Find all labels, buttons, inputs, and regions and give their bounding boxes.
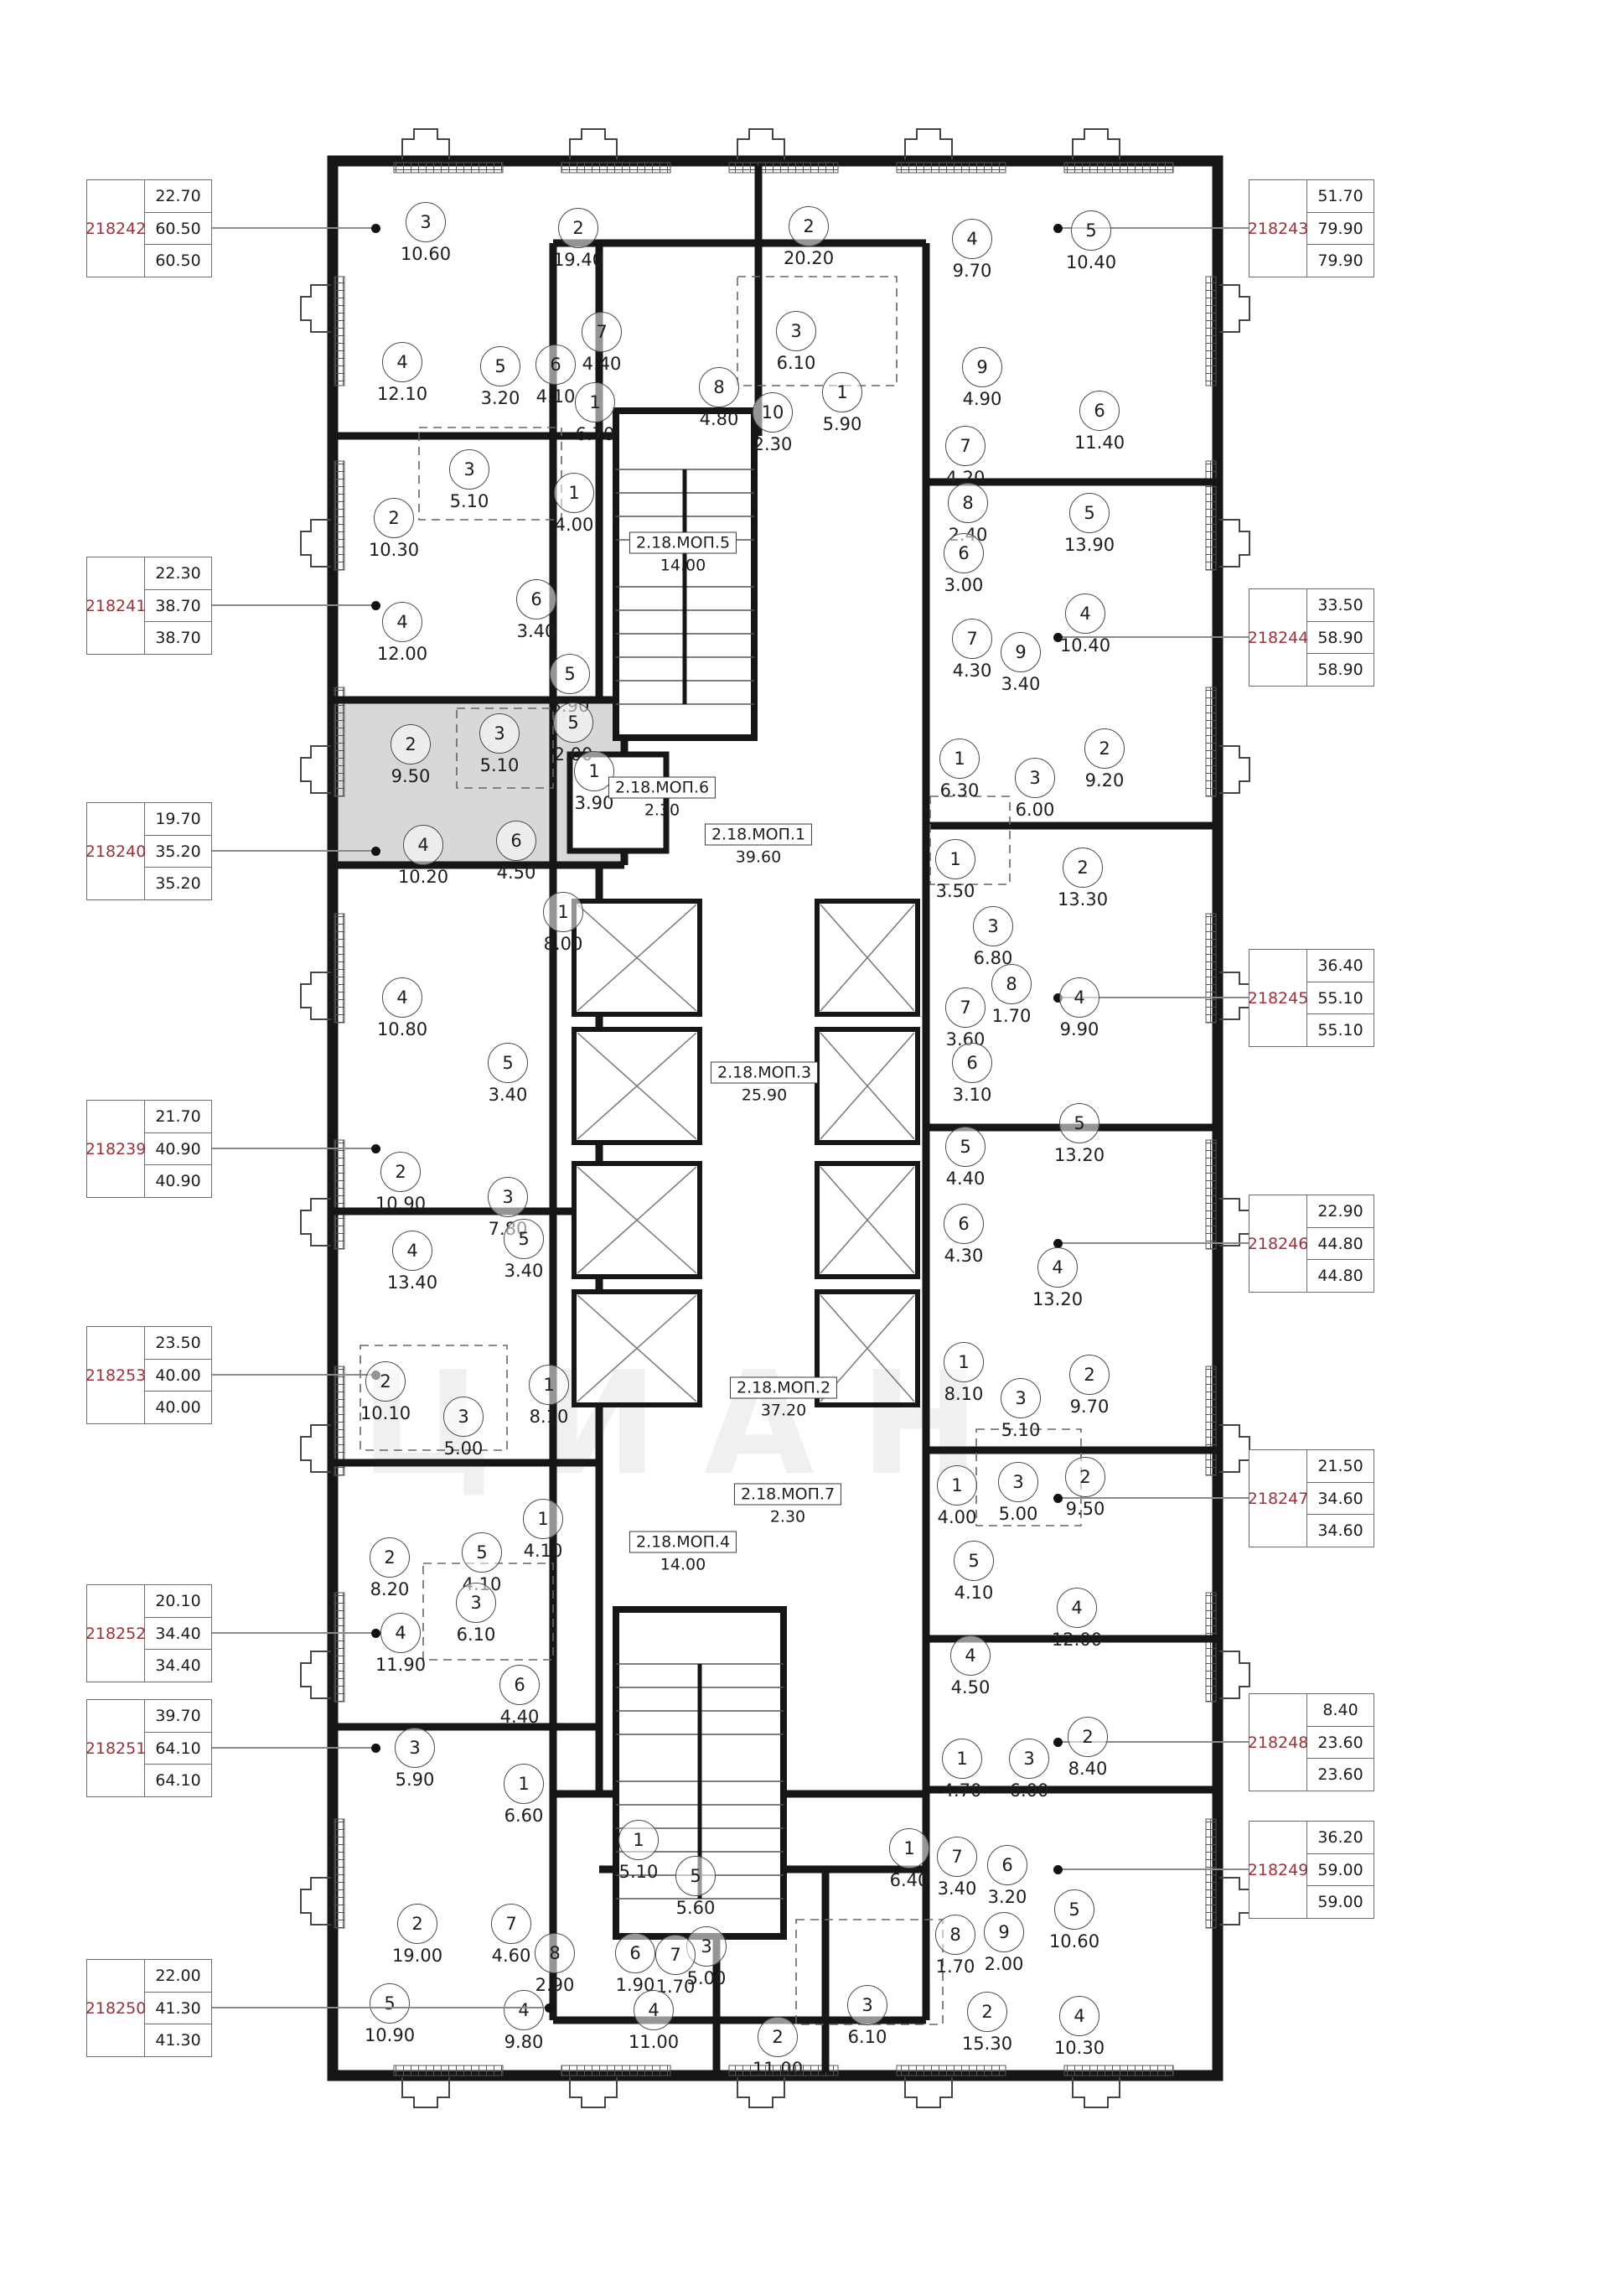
room-number: 5 bbox=[504, 1219, 544, 1259]
room-label: 36.10 bbox=[746, 311, 846, 373]
room-label: 211.00 bbox=[727, 2017, 828, 2079]
room-number: 6 bbox=[1079, 391, 1120, 431]
room-area: 6.00 bbox=[979, 1780, 1079, 1801]
room-number: 2 bbox=[391, 724, 431, 764]
room-area: 3.00 bbox=[913, 575, 1014, 595]
room-label: 310.60 bbox=[375, 202, 476, 264]
apartment-area-value: 40.00 bbox=[145, 1360, 211, 1392]
room-label: 215.30 bbox=[937, 1992, 1037, 2054]
room-area: 9.80 bbox=[473, 2032, 574, 2052]
room-area: 15.30 bbox=[937, 2034, 1037, 2054]
common-area-name: 2.18.МОП.4 bbox=[629, 1532, 737, 1553]
apartment-area-value: 40.90 bbox=[145, 1133, 211, 1166]
apartment-areas: 22.7060.5060.50 bbox=[145, 180, 211, 277]
room-area: 9.90 bbox=[1029, 1019, 1130, 1039]
apartment-id: 218240 bbox=[87, 803, 145, 899]
room-area: 9.70 bbox=[1039, 1397, 1140, 1417]
apartment-id-box: 21825022.0041.3041.30 bbox=[86, 1959, 212, 2057]
apartment-area-value: 22.30 bbox=[145, 557, 211, 590]
room-number: 1 bbox=[822, 372, 862, 412]
room-area: 12.10 bbox=[352, 384, 453, 404]
room-area: 3.10 bbox=[922, 1085, 1022, 1105]
room-area: 10.30 bbox=[344, 540, 444, 560]
room-number: 3 bbox=[1001, 1378, 1041, 1418]
apartment-id-box: 21824222.7060.5060.50 bbox=[86, 179, 212, 277]
room-label: 49.90 bbox=[1029, 977, 1130, 1039]
room-area: 13.20 bbox=[1029, 1145, 1130, 1165]
room-label: 53.40 bbox=[458, 1043, 558, 1105]
room-area: 4.50 bbox=[466, 863, 567, 883]
apartment-id-box: 2182488.4023.6023.60 bbox=[1249, 1693, 1374, 1791]
apartment-id-box: 21825139.7064.1064.10 bbox=[86, 1699, 212, 1797]
room-label: 219.40 bbox=[528, 208, 629, 270]
room-number: 3 bbox=[998, 1462, 1038, 1502]
apartment-id: 218247 bbox=[1249, 1450, 1307, 1547]
room-number: 2 bbox=[1063, 847, 1103, 888]
room-label: 412.00 bbox=[352, 602, 453, 664]
room-area: 10.20 bbox=[373, 867, 473, 887]
room-label: 53.40 bbox=[473, 1219, 574, 1281]
room-area: 10.40 bbox=[1041, 252, 1141, 272]
common-area-area: 14.00 bbox=[629, 557, 737, 575]
apartment-id: 218250 bbox=[87, 1960, 145, 2056]
room-label: 213.30 bbox=[1032, 847, 1133, 910]
room-area: 8.20 bbox=[339, 1579, 440, 1599]
floorplan-canvas: ЦИАН 21824222.7060.5060.50310.60219.4074… bbox=[0, 0, 1609, 2296]
room-label: 94.90 bbox=[932, 347, 1032, 409]
room-number: 4 bbox=[950, 1635, 991, 1676]
apartment-area-value: 40.90 bbox=[145, 1165, 211, 1197]
room-number: 8 bbox=[535, 1933, 575, 1973]
room-number: 4 bbox=[382, 342, 422, 382]
room-number: 1 bbox=[942, 1739, 982, 1779]
leader-line bbox=[212, 1747, 375, 1749]
apartment-id: 218241 bbox=[87, 557, 145, 654]
apartment-area-value: 64.10 bbox=[145, 1765, 211, 1796]
apartment-id: 218244 bbox=[1249, 589, 1307, 686]
room-area: 5.10 bbox=[970, 1420, 1071, 1440]
room-area: 4.40 bbox=[469, 1707, 570, 1727]
room-number: 3 bbox=[449, 449, 489, 490]
common-area-area: 2.30 bbox=[608, 801, 716, 820]
room-label: 18.00 bbox=[513, 892, 613, 954]
apartment-area-value: 22.90 bbox=[1307, 1195, 1374, 1228]
room-area: 3.40 bbox=[458, 1085, 558, 1105]
room-area: 10.60 bbox=[375, 244, 476, 264]
room-number: 1 bbox=[944, 1342, 984, 1382]
apartment-areas: 22.9044.8044.80 bbox=[1307, 1195, 1374, 1292]
room-label: 210.30 bbox=[344, 498, 444, 560]
apartment-id: 218252 bbox=[87, 1585, 145, 1682]
room-label: 36.80 bbox=[943, 906, 1043, 968]
room-number: 4 bbox=[403, 825, 443, 865]
apartment-area-value: 60.50 bbox=[145, 213, 211, 246]
room-area: 4.00 bbox=[524, 515, 624, 535]
room-label: 49.70 bbox=[922, 219, 1022, 281]
room-area: 19.40 bbox=[528, 250, 629, 270]
leader-line bbox=[212, 2007, 549, 2008]
room-area: 5.60 bbox=[645, 1898, 746, 1918]
room-label: 210.90 bbox=[350, 1152, 451, 1214]
room-area: 10.40 bbox=[1035, 635, 1136, 656]
apartment-area-value: 40.00 bbox=[145, 1392, 211, 1423]
room-label: 412.00 bbox=[1027, 1588, 1127, 1650]
room-label: 92.00 bbox=[954, 1912, 1054, 1974]
room-number: 5 bbox=[1071, 210, 1111, 251]
room-label: 28.20 bbox=[339, 1537, 440, 1599]
room-label: 71.70 bbox=[625, 1935, 726, 1997]
apartment-area-value: 20.10 bbox=[145, 1585, 211, 1618]
room-label: 63.10 bbox=[922, 1043, 1022, 1105]
room-area: 6.60 bbox=[473, 1806, 574, 1826]
room-label: 13.50 bbox=[905, 839, 1006, 901]
apartment-area-value: 41.30 bbox=[145, 1993, 211, 2025]
room-label: 513.20 bbox=[1029, 1103, 1130, 1165]
common-area-label: 2.18.МОП.62.30 bbox=[608, 777, 716, 820]
room-area: 9.50 bbox=[360, 766, 461, 786]
apartment-id-box: 21824721.5034.6034.60 bbox=[1249, 1449, 1374, 1547]
room-number: 4 bbox=[1059, 1996, 1099, 2036]
room-label: 411.90 bbox=[350, 1613, 451, 1675]
room-area: 13.90 bbox=[1039, 535, 1140, 555]
room-number: 6 bbox=[944, 1204, 984, 1244]
apartment-areas: 19.7035.2035.20 bbox=[145, 803, 211, 899]
room-label: 510.40 bbox=[1041, 210, 1141, 272]
room-area: 10.90 bbox=[350, 1194, 451, 1214]
room-area: 11.00 bbox=[603, 2032, 704, 2052]
apartment-id-box: 21825220.1034.4034.40 bbox=[86, 1584, 212, 1682]
apartment-area-value: 59.00 bbox=[1307, 1854, 1374, 1887]
room-number: 4 bbox=[1057, 1588, 1097, 1628]
room-number: 2 bbox=[374, 498, 414, 538]
room-label: 63.40 bbox=[486, 579, 587, 641]
room-label: 413.40 bbox=[362, 1231, 463, 1293]
room-number: 3 bbox=[776, 311, 816, 351]
apartment-id-box: 21824122.3038.7038.70 bbox=[86, 557, 212, 655]
room-label: 63.00 bbox=[913, 533, 1014, 595]
room-number: 1 bbox=[504, 1764, 544, 1804]
room-number: 5 bbox=[945, 1127, 986, 1167]
room-area: 4.50 bbox=[920, 1677, 1021, 1697]
room-number: 3 bbox=[847, 1985, 887, 2025]
room-number: 2 bbox=[1084, 728, 1125, 769]
room-number: 5 bbox=[675, 1856, 716, 1896]
room-number: 2 bbox=[397, 1904, 437, 1944]
apartment-id: 218249 bbox=[1249, 1822, 1307, 1918]
room-area: 13.40 bbox=[362, 1272, 463, 1293]
room-area: 10.80 bbox=[352, 1019, 453, 1039]
apartment-area-value: 59.00 bbox=[1307, 1886, 1374, 1918]
room-area: 3.40 bbox=[970, 674, 1071, 694]
room-label: 49.80 bbox=[473, 1990, 574, 2052]
room-number: 2 bbox=[967, 1992, 1007, 2032]
apartment-area-value: 58.90 bbox=[1307, 654, 1374, 686]
apartment-area-value: 36.40 bbox=[1307, 950, 1374, 982]
room-area: 11.40 bbox=[1049, 433, 1150, 453]
room-number: 5 bbox=[553, 702, 593, 743]
room-area: 11.90 bbox=[350, 1655, 451, 1675]
room-label: 18.10 bbox=[499, 1365, 599, 1427]
room-area: 5.90 bbox=[792, 414, 892, 434]
apartment-area-value: 79.90 bbox=[1307, 245, 1374, 277]
room-number: 6 bbox=[952, 1043, 992, 1083]
room-area: 4.10 bbox=[923, 1583, 1024, 1603]
apartment-area-value: 38.70 bbox=[145, 622, 211, 654]
room-number: 1 bbox=[529, 1365, 569, 1405]
apartment-area-value: 60.50 bbox=[145, 245, 211, 277]
apartment-area-value: 21.50 bbox=[1307, 1450, 1374, 1483]
room-area: 6.10 bbox=[817, 2027, 918, 2047]
room-area: 2.00 bbox=[954, 1954, 1054, 1974]
room-area: 9.20 bbox=[1054, 770, 1155, 790]
room-label: 36.10 bbox=[817, 1985, 918, 2047]
common-area-label: 2.18.МОП.414.00 bbox=[629, 1532, 737, 1574]
apartment-area-value: 23.50 bbox=[145, 1327, 211, 1360]
room-number: 6 bbox=[496, 821, 536, 861]
room-area: 8.00 bbox=[513, 934, 613, 954]
room-number: 4 bbox=[392, 1231, 432, 1271]
room-number: 3 bbox=[395, 1728, 435, 1768]
room-label: 64.40 bbox=[469, 1665, 570, 1727]
room-label: 412.10 bbox=[352, 342, 453, 404]
room-number: 2 bbox=[1068, 1717, 1108, 1757]
apartment-area-value: 44.80 bbox=[1307, 1228, 1374, 1261]
common-area-label: 2.18.МОП.514.00 bbox=[629, 532, 737, 575]
common-area-name: 2.18.МОП.2 bbox=[730, 1377, 837, 1399]
room-area: 3.40 bbox=[473, 1261, 574, 1281]
room-area: 4.30 bbox=[913, 1246, 1014, 1266]
room-number: 5 bbox=[488, 1043, 528, 1083]
room-label: 220.20 bbox=[758, 206, 859, 268]
room-number: 3 bbox=[456, 1583, 496, 1623]
room-number: 10 bbox=[753, 392, 793, 433]
room-area: 20.20 bbox=[758, 248, 859, 268]
apartment-area-value: 8.40 bbox=[1307, 1694, 1374, 1727]
apartment-areas: 36.4055.1055.10 bbox=[1307, 950, 1374, 1046]
room-number: 1 bbox=[543, 892, 583, 932]
common-area-name: 2.18.МОП.7 bbox=[734, 1484, 841, 1506]
room-area: 13.20 bbox=[1007, 1289, 1108, 1309]
room-number: 1 bbox=[935, 839, 975, 879]
room-number: 6 bbox=[499, 1665, 540, 1705]
apartment-id-box: 21824622.9044.8044.80 bbox=[1249, 1195, 1374, 1293]
common-area-label: 2.18.МОП.72.30 bbox=[734, 1484, 841, 1526]
apartment-id: 218243 bbox=[1249, 180, 1307, 277]
common-area-name: 2.18.МОП.6 bbox=[608, 777, 716, 799]
apartment-id: 218251 bbox=[87, 1700, 145, 1796]
leader-line bbox=[1058, 1242, 1249, 1244]
room-number: 7 bbox=[945, 987, 986, 1028]
room-label: 413.20 bbox=[1007, 1247, 1108, 1309]
apartment-area-value: 55.10 bbox=[1307, 1014, 1374, 1046]
common-area-area: 2.30 bbox=[734, 1508, 841, 1526]
apartment-areas: 20.1034.4034.40 bbox=[145, 1585, 211, 1682]
apartment-area-value: 55.10 bbox=[1307, 982, 1374, 1015]
apartment-area-value: 38.70 bbox=[145, 590, 211, 623]
room-label: 29.50 bbox=[360, 724, 461, 786]
room-area: 8.10 bbox=[499, 1407, 599, 1427]
room-label: 410.20 bbox=[373, 825, 473, 887]
room-number: 4 bbox=[634, 1990, 674, 2030]
room-number: 1 bbox=[554, 473, 594, 513]
room-number: 5 bbox=[370, 1983, 410, 2024]
room-area: 12.00 bbox=[352, 644, 453, 664]
room-number: 3 bbox=[1015, 758, 1055, 798]
room-number: 2 bbox=[1065, 1457, 1105, 1497]
apartment-area-value: 23.60 bbox=[1307, 1759, 1374, 1791]
apartment-areas: 39.7064.1064.10 bbox=[145, 1700, 211, 1796]
room-area: 9.70 bbox=[922, 261, 1022, 281]
room-area: 9.50 bbox=[1035, 1499, 1136, 1519]
room-label: 16.70 bbox=[545, 382, 645, 444]
room-number: 1 bbox=[575, 382, 615, 422]
room-area: 6.00 bbox=[985, 800, 1085, 820]
room-label: 28.40 bbox=[1037, 1717, 1138, 1779]
room-number: 1 bbox=[618, 1820, 659, 1860]
apartment-areas: 21.7040.9040.90 bbox=[145, 1101, 211, 1197]
apartment-id: 218248 bbox=[1249, 1694, 1307, 1791]
apartment-area-value: 51.70 bbox=[1307, 180, 1374, 213]
room-area: 5.90 bbox=[365, 1770, 465, 1790]
room-label: 410.30 bbox=[1029, 1996, 1130, 2058]
room-label: 55.60 bbox=[645, 1856, 746, 1918]
apartment-areas: 33.5058.9058.90 bbox=[1307, 589, 1374, 686]
apartment-area-value: 19.70 bbox=[145, 803, 211, 836]
room-number: 2 bbox=[1069, 1355, 1110, 1395]
room-number: 4 bbox=[382, 602, 422, 642]
room-area: 11.00 bbox=[727, 2059, 828, 2079]
room-number: 3 bbox=[973, 906, 1013, 946]
room-number: 5 bbox=[954, 1541, 994, 1581]
room-area: 4.40 bbox=[915, 1169, 1016, 1189]
room-area: 5.00 bbox=[413, 1438, 514, 1459]
room-area: 8.40 bbox=[1037, 1759, 1138, 1779]
leader-line bbox=[212, 227, 375, 229]
room-number: 6 bbox=[516, 579, 556, 619]
common-area-area: 39.60 bbox=[705, 848, 812, 867]
apartment-areas: 8.4023.6023.60 bbox=[1307, 1694, 1374, 1791]
room-number: 8 bbox=[948, 483, 988, 523]
room-number: 9 bbox=[984, 1912, 1024, 1952]
room-label: 29.20 bbox=[1054, 728, 1155, 790]
room-label: 54.10 bbox=[923, 1541, 1024, 1603]
apartment-id-box: 21824936.2059.0059.00 bbox=[1249, 1821, 1374, 1919]
room-number: 7 bbox=[945, 426, 986, 466]
common-area-area: 37.20 bbox=[730, 1402, 837, 1420]
room-area: 3.50 bbox=[905, 881, 1006, 901]
room-number: 4 bbox=[380, 1613, 421, 1653]
elevator-shafts bbox=[574, 901, 918, 1405]
apartment-id-box: 21824019.7035.2035.20 bbox=[86, 802, 212, 900]
apartment-id-box: 21825323.5040.0040.00 bbox=[86, 1326, 212, 1424]
apartment-area-value: 35.20 bbox=[145, 868, 211, 899]
common-area-name: 2.18.МОП.3 bbox=[711, 1062, 818, 1084]
apartment-areas: 22.0041.3041.30 bbox=[145, 1960, 211, 2056]
room-label: 64.50 bbox=[466, 821, 567, 883]
room-number: 1 bbox=[939, 739, 980, 779]
leader-line bbox=[212, 1148, 375, 1149]
room-label: 74.20 bbox=[915, 426, 1016, 488]
apartment-area-value: 35.20 bbox=[145, 836, 211, 868]
apartment-area-value: 23.60 bbox=[1307, 1727, 1374, 1760]
apartment-id-box: 21824351.7079.9079.90 bbox=[1249, 179, 1374, 277]
room-number: 4 bbox=[382, 977, 422, 1018]
apartment-area-value: 21.70 bbox=[145, 1101, 211, 1133]
room-area: 6.70 bbox=[545, 424, 645, 444]
apartment-area-value: 79.90 bbox=[1307, 213, 1374, 246]
room-label: 14.00 bbox=[524, 473, 624, 535]
apartment-area-value: 22.00 bbox=[145, 1960, 211, 1993]
apartment-area-value: 33.50 bbox=[1307, 589, 1374, 622]
room-label: 35.90 bbox=[365, 1728, 465, 1790]
room-number: 4 bbox=[504, 1990, 544, 2030]
apartment-area-value: 34.60 bbox=[1307, 1515, 1374, 1547]
room-number: 5 bbox=[462, 1532, 502, 1573]
room-number: 3 bbox=[488, 1177, 528, 1217]
room-label: 410.80 bbox=[352, 977, 453, 1039]
room-number: 5 bbox=[1069, 493, 1110, 533]
apartment-areas: 21.5034.6034.60 bbox=[1307, 1450, 1374, 1547]
room-number: 9 bbox=[962, 347, 1002, 387]
room-number: 4 bbox=[1059, 977, 1099, 1018]
room-label: 44.50 bbox=[920, 1635, 1021, 1697]
apartment-areas: 22.3038.7038.70 bbox=[145, 557, 211, 654]
room-label: 410.40 bbox=[1035, 593, 1136, 656]
room-number: 5 bbox=[550, 654, 590, 694]
apartment-id: 218239 bbox=[87, 1101, 145, 1197]
room-number: 5 bbox=[1059, 1103, 1099, 1143]
room-label: 64.30 bbox=[913, 1204, 1014, 1266]
room-label: 73.60 bbox=[915, 987, 1016, 1050]
apartment-area-value: 22.70 bbox=[145, 180, 211, 213]
room-label: 513.90 bbox=[1039, 493, 1140, 555]
apartment-id-box: 21824536.4055.1055.10 bbox=[1249, 949, 1374, 1047]
room-number: 6 bbox=[535, 345, 576, 385]
room-number: 5 bbox=[1054, 1889, 1094, 1930]
room-area: 13.30 bbox=[1032, 889, 1133, 910]
apartment-area-value: 39.70 bbox=[145, 1700, 211, 1733]
apartment-id: 218242 bbox=[87, 180, 145, 277]
apartment-areas: 51.7079.9079.90 bbox=[1307, 180, 1374, 277]
room-area: 19.00 bbox=[367, 1946, 468, 1966]
common-area-label: 2.18.МОП.139.60 bbox=[705, 824, 812, 867]
apartment-areas: 36.2059.0059.00 bbox=[1307, 1822, 1374, 1918]
leader-line bbox=[1058, 1868, 1249, 1870]
room-area: 4.90 bbox=[932, 389, 1032, 409]
room-number: 4 bbox=[1037, 1247, 1078, 1288]
apartment-area-value: 44.80 bbox=[1307, 1260, 1374, 1292]
room-label: 611.40 bbox=[1049, 391, 1150, 453]
common-area-label: 2.18.МОП.325.90 bbox=[711, 1062, 818, 1105]
room-label: 54.40 bbox=[915, 1127, 1016, 1189]
room-number: 2 bbox=[365, 1361, 406, 1402]
leader-dot bbox=[545, 2003, 554, 2013]
apartment-area-value: 34.40 bbox=[145, 1650, 211, 1682]
room-number: 3 bbox=[479, 713, 520, 754]
apartment-id: 218253 bbox=[87, 1327, 145, 1423]
apartment-id: 218246 bbox=[1249, 1195, 1307, 1292]
room-number: 4 bbox=[952, 219, 992, 259]
room-number: 6 bbox=[944, 533, 984, 573]
apartment-id: 218245 bbox=[1249, 950, 1307, 1046]
common-area-name: 2.18.МОП.5 bbox=[629, 532, 737, 554]
leader-line bbox=[212, 850, 375, 852]
room-label: 29.50 bbox=[1035, 1457, 1136, 1519]
room-number: 3 bbox=[406, 202, 446, 242]
apartment-area-value: 58.90 bbox=[1307, 622, 1374, 655]
apartment-id-box: 21824433.5058.9058.90 bbox=[1249, 588, 1374, 687]
apartment-area-value: 64.10 bbox=[145, 1733, 211, 1765]
